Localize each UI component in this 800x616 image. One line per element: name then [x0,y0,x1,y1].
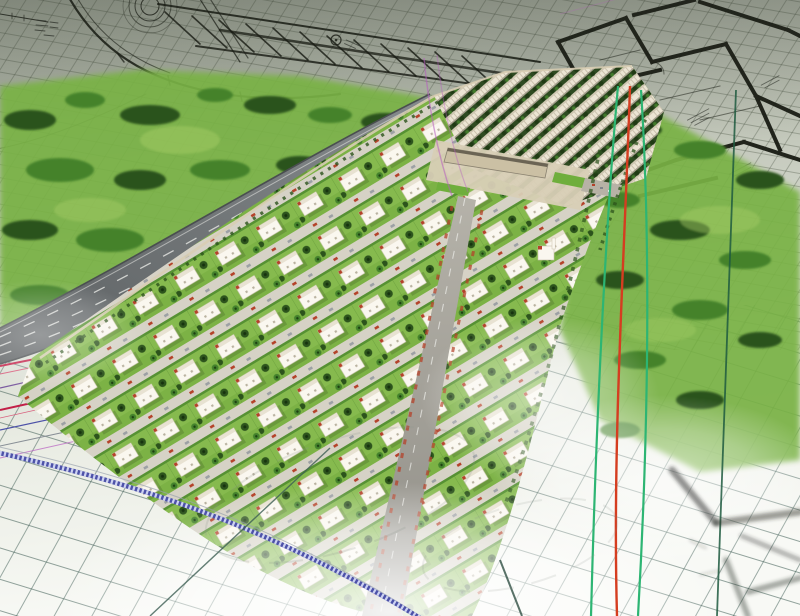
minaret [552,238,555,249]
parked-car [592,184,595,186]
render-canvas [0,0,800,616]
parked-car [600,187,603,189]
masterplan-render [0,0,800,616]
